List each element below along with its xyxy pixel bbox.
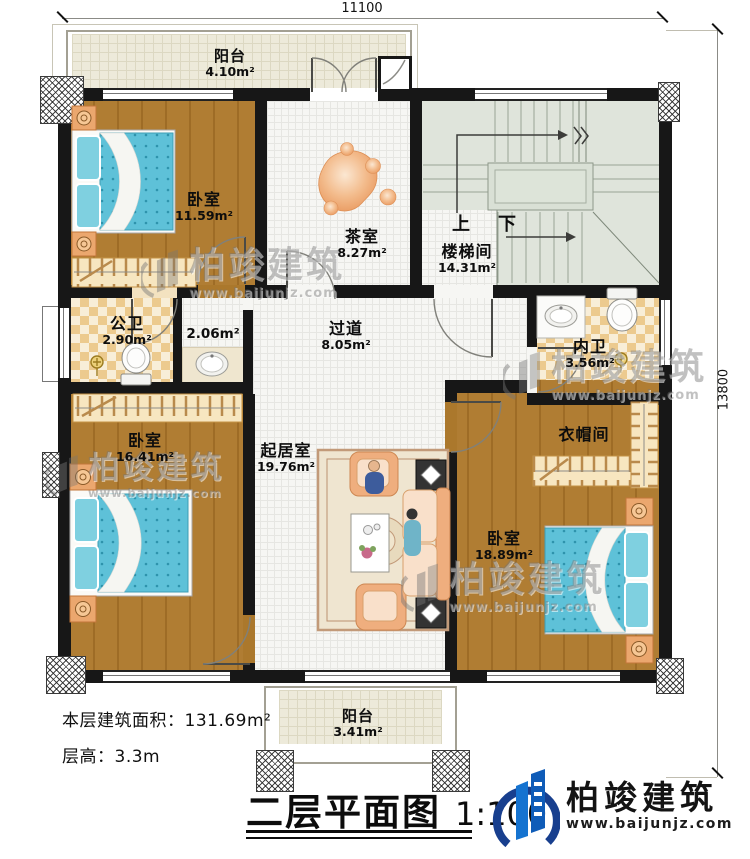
dimension-width: 11100 — [332, 1, 392, 16]
room-label-public-bath: 公卫 2.90m² — [102, 315, 151, 347]
wall — [334, 285, 434, 298]
watermark-logo-icon — [141, 247, 183, 301]
door-gap-balcony — [310, 88, 378, 101]
wall — [410, 88, 422, 298]
room-label-stairwell: 楼梯间 14.31m² — [438, 243, 496, 275]
door-gap-bedroom3 — [445, 402, 457, 452]
room-label-corridor: 过道 8.05m² — [321, 320, 370, 352]
wall — [445, 393, 457, 402]
page-title: 二层平面图 — [246, 782, 441, 836]
wall — [243, 663, 255, 670]
brand-logo: 柏竣建筑 www.baijunjz.com — [488, 762, 733, 850]
wash-counter — [182, 347, 245, 384]
window-bedroom3 — [487, 670, 620, 683]
room-label-bedroom2: 卧室 16.41m² — [116, 432, 174, 464]
dimension-stub — [666, 30, 717, 31]
room-label-balcony-bottom: 阳台 3.41m² — [333, 708, 382, 739]
door-gap-bedroom2 — [243, 615, 255, 663]
dimension-tick — [656, 11, 668, 23]
window-bedroom1 — [103, 88, 233, 101]
window-bedroom2 — [103, 670, 230, 683]
pillar — [40, 76, 84, 124]
dimension-tick — [56, 11, 68, 23]
room-label-balcony-top: 阳台 4.10m² — [205, 48, 254, 79]
floor-stairwell-lower — [497, 210, 659, 285]
brand-logo-icon — [488, 762, 560, 850]
wall — [243, 394, 255, 615]
stair-up-label: 上 — [452, 210, 470, 236]
floor-plan-canvas: 阳台 4.10m² 卧室 11.59m² 茶室 8.27m² 上 下 楼梯间 1… — [0, 0, 750, 859]
title-underline — [246, 830, 472, 833]
wall — [58, 285, 132, 298]
room-label-bedroom1: 卧室 11.59m² — [175, 191, 233, 223]
brand-url: www.baijunjz.com — [566, 816, 733, 832]
dimension-line-top — [62, 18, 663, 19]
floor-bedroom2 — [71, 382, 243, 670]
pillar — [658, 82, 680, 122]
title-underline — [246, 837, 472, 839]
flue-shaft — [378, 56, 412, 92]
watermark: 柏竣建筑www.baijunjz.com — [401, 561, 605, 615]
brand-name: 柏竣建筑 — [566, 780, 733, 816]
pillar — [46, 656, 86, 694]
watermark: 柏竣建筑www.baijunjz.com — [141, 247, 345, 301]
window-stairwell — [475, 88, 607, 101]
floor-stairwell-upper — [422, 101, 659, 210]
room-label-private-bath: 内卫 3.56m² — [565, 338, 614, 370]
room-label-cloakroom: 衣帽间 — [558, 426, 609, 444]
wall — [493, 285, 672, 298]
stair-down-label: 下 — [498, 210, 516, 236]
dimension-height: 13800 — [717, 360, 732, 420]
window-public-bath — [58, 308, 71, 378]
wall — [243, 310, 253, 382]
floor-bedroom3 — [445, 380, 659, 670]
wall — [527, 298, 537, 347]
note-floor-height: 层高：3.3m — [62, 742, 160, 767]
window-living-room — [305, 670, 450, 683]
room-label-bedroom3: 卧室 18.89m² — [475, 530, 533, 562]
room-label-tea-room: 茶室 8.27m² — [337, 228, 386, 260]
note-floor-area: 本层建筑面积：131.69m² — [62, 706, 271, 731]
pillar — [656, 658, 684, 694]
wall — [173, 298, 182, 382]
door-gap-stairwell — [434, 285, 493, 298]
wall — [58, 382, 253, 394]
room-label-living-room: 起居室 19.76m² — [257, 442, 315, 474]
room-label-wash-area: 2.06m² — [186, 327, 239, 342]
